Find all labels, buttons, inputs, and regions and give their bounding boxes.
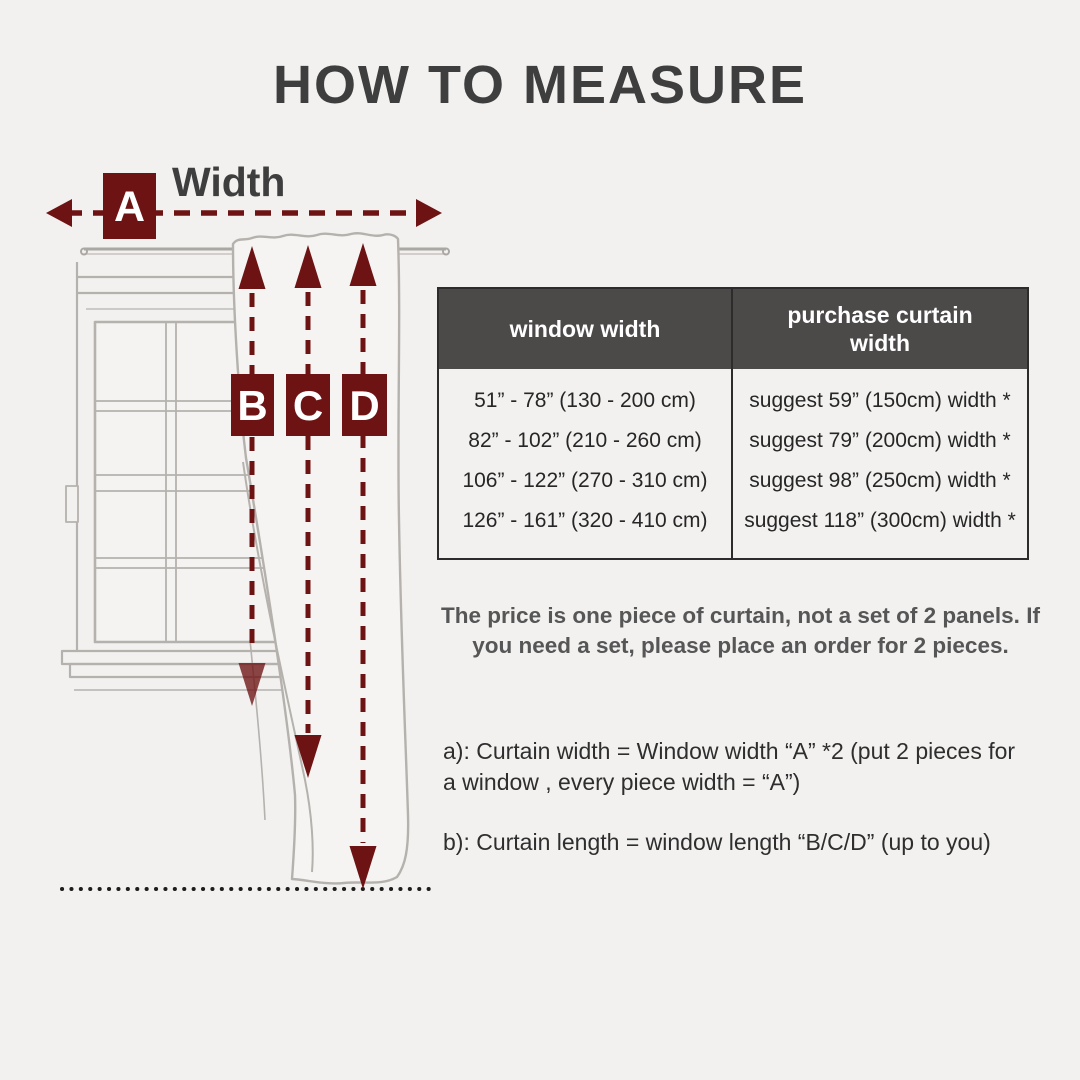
- arrow-down-icon: [239, 663, 266, 706]
- size-table-header: window width purchase curtain width: [439, 289, 1027, 369]
- header-window-width: window width: [439, 289, 733, 369]
- table-cell: 126” - 161” (320 - 410 cm): [439, 501, 731, 541]
- arrow-right-icon: [416, 199, 442, 227]
- arrow-left-icon: [46, 199, 72, 227]
- table-cell: suggest 59” (150cm) width *: [733, 381, 1027, 421]
- table-cell: 82” - 102” (210 - 260 cm): [439, 421, 731, 461]
- table-cell: 106” - 122” (270 - 310 cm): [439, 461, 731, 501]
- table-cell: 51” - 78” (130 - 200 cm): [439, 381, 731, 421]
- width-label: Width: [172, 159, 285, 205]
- table-cell: suggest 98” (250cm) width *: [733, 461, 1027, 501]
- size-table: window width purchase curtain width 51” …: [437, 287, 1029, 560]
- label-a: A: [114, 183, 145, 231]
- curtain-sketch: [233, 233, 408, 883]
- price-note: The price is one piece of curtain, not a…: [428, 601, 1053, 661]
- header-purchase-width: purchase curtain width: [733, 289, 1027, 369]
- table-cell: suggest 118” (300cm) width *: [733, 501, 1027, 541]
- label-c: C: [293, 382, 323, 429]
- table-cell: suggest 79” (200cm) width *: [733, 421, 1027, 461]
- label-b: B: [237, 382, 267, 429]
- note-curtain-width: a): Curtain width = Window width “A” *2 …: [443, 736, 1028, 798]
- column-window-width: 51” - 78” (130 - 200 cm) 82” - 102” (210…: [439, 369, 733, 558]
- note-curtain-length: b): Curtain length = window length “B/C/…: [443, 827, 1043, 858]
- label-d: D: [349, 382, 379, 429]
- column-purchase-width: suggest 59” (150cm) width * suggest 79” …: [733, 369, 1027, 558]
- size-table-body: 51” - 78” (130 - 200 cm) 82” - 102” (210…: [439, 369, 1027, 558]
- window-hinge: [66, 486, 78, 522]
- infographic-canvas: HOW TO MEASURE: [0, 0, 1080, 1080]
